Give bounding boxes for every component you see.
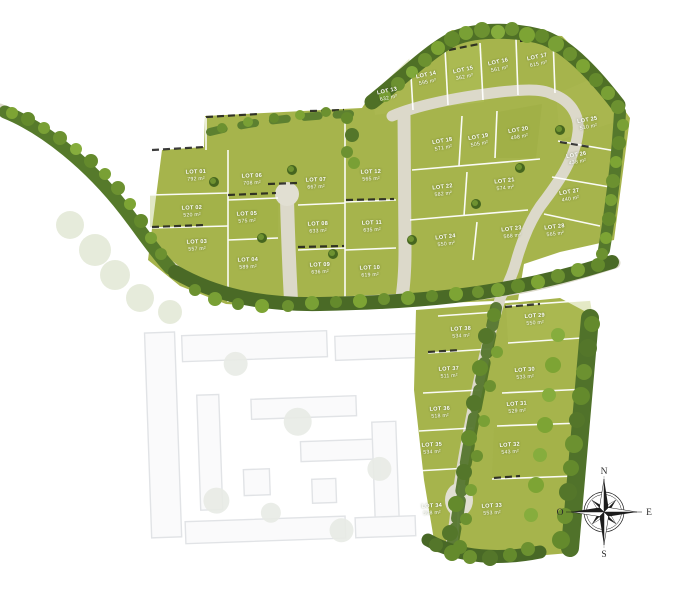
lot-area: 633 m² [308,228,329,235]
lot-area: 534 m² [422,449,443,457]
lot-area: 529 m² [507,408,528,416]
lot-label: LOT 34508 m² [421,503,442,518]
lot-label: LOT 03557 m² [187,239,208,253]
lot-area: 508 m² [422,510,443,518]
lot-area: 550 m² [436,240,457,249]
lot-area: 543 m² [500,449,521,457]
lot-id: LOT 36 [429,406,450,413]
lot-label: LOT 23568 m² [501,225,523,241]
lot-label: LOT 21574 m² [494,177,516,193]
lot-id: LOT 35 [421,442,442,449]
lot-label: LOT 22582 m² [432,183,454,199]
lot-label: LOT 27440 m² [559,188,581,205]
lot-area: 667 m² [306,184,327,191]
lot-label: LOT 36518 m² [429,406,450,421]
lot-id: LOT 34 [421,503,442,510]
lot-label: LOT 29550 m² [524,313,545,328]
lot-label: LOT 18571 m² [432,137,454,154]
lot-area: 574 m² [495,184,516,193]
lot-area: 511 m² [439,373,460,381]
lot-label: LOT 28565 m² [544,223,566,239]
lot-label: LOT 26438 m² [566,151,588,168]
lot-area: 550 m² [525,320,546,328]
lot-label: LOT 32543 m² [499,442,520,457]
lot-label: LOT 10619 m² [360,265,381,279]
lot-area: 636 m² [310,269,331,276]
lot-label: LOT 05575 m² [237,211,258,225]
lot-id: LOT 09 [310,262,331,269]
lot-label: LOT 17615 m² [527,52,550,69]
lot-label: LOT 37511 m² [438,366,459,381]
lot-label: LOT 19505 m² [468,133,490,150]
lot-area: 619 m² [360,272,381,279]
lot-label: LOT 20498 m² [508,126,530,143]
lot-id: LOT 06 [242,173,263,180]
lot-label: LOT 31529 m² [506,401,527,416]
lot-label: LOT 06708 m² [242,173,263,187]
lot-label: LOT 02520 m² [182,205,203,219]
lot-id: LOT 38 [450,326,471,333]
lot-label: LOT 33553 m² [481,503,502,518]
lot-label: LOT 12565 m² [361,169,382,183]
lot-id: LOT 33 [481,503,502,510]
lot-id: LOT 01 [186,169,207,176]
lot-area: 520 m² [182,212,203,219]
lot-label: LOT 15362 m² [453,65,476,82]
lot-area: 557 m² [187,246,208,253]
lot-label: LOT 01792 m² [186,169,207,183]
lot-id: LOT 37 [438,366,459,373]
lot-area: 589 m² [238,264,259,271]
lot-label: LOT 08633 m² [308,221,329,235]
lot-area: 635 m² [362,227,382,234]
lot-id: LOT 11 [362,220,382,227]
lot-id: LOT 10 [360,265,381,272]
lot-label: LOT 25510 m² [577,116,599,133]
lot-id: LOT 04 [238,257,259,264]
lot-id: LOT 07 [306,177,327,184]
lot-id: LOT 05 [237,211,258,218]
site-plan-canvas: N S E O LOT 01792 m²LOT 02520 m²LOT 0355… [0,0,691,600]
lot-id: LOT 12 [361,169,382,176]
lot-label: LOT 07667 m² [306,177,327,191]
lot-label: LOT 16561 m² [488,57,511,74]
lot-area: 534 m² [451,333,472,341]
lot-label: LOT 38534 m² [450,326,471,341]
lot-label: LOT 30533 m² [514,367,535,382]
lot-label: LOT 14595 m² [416,70,439,87]
lot-area: 575 m² [237,218,258,225]
lot-label: LOT 09636 m² [310,262,331,276]
lot-area: 792 m² [186,176,207,183]
lot-label: LOT 11635 m² [362,220,383,234]
lot-id: LOT 08 [308,221,329,228]
lot-area: 565 m² [545,230,566,239]
lot-id: LOT 02 [182,205,203,212]
lot-area: 565 m² [361,176,382,183]
lot-area: 533 m² [515,374,536,382]
lot-labels-layer: LOT 01792 m²LOT 02520 m²LOT 03557 m²LOT … [0,0,691,600]
lot-area: 568 m² [502,232,523,241]
lot-area: 582 m² [433,190,454,199]
lot-label: LOT 04589 m² [238,257,259,271]
lot-label: LOT 35534 m² [421,442,442,457]
lot-area: 518 m² [430,413,451,421]
lot-label: LOT 24550 m² [435,233,457,249]
lot-id: LOT 03 [187,239,208,246]
lot-area: 708 m² [242,180,263,187]
lot-area: 553 m² [482,510,503,518]
lot-label: LOT 13632 m² [377,86,400,103]
